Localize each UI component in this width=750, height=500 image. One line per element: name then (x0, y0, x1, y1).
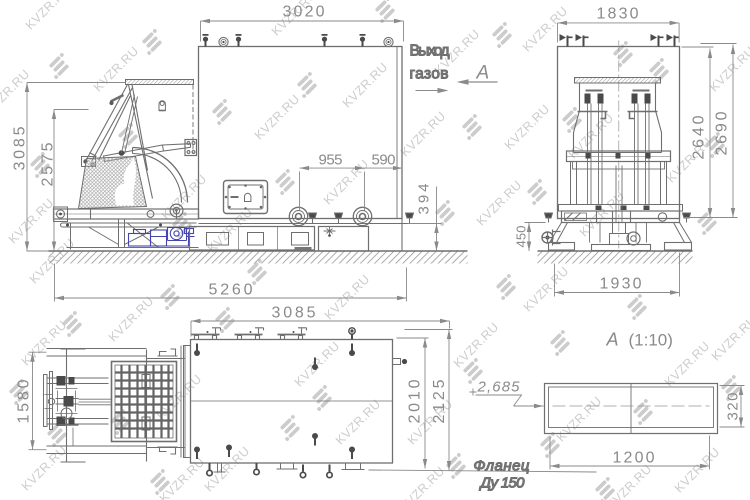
svg-text:Ду 150: Ду 150 (479, 475, 526, 492)
svg-text:450: 450 (514, 226, 529, 248)
svg-text:Выход: Выход (410, 43, 450, 60)
svg-text:590: 590 (372, 152, 396, 169)
svg-text:955: 955 (319, 152, 343, 169)
svg-text:2,685: 2,685 (477, 379, 521, 396)
svg-text:А: А (606, 330, 619, 350)
svg-text:Фланец: Фланец (474, 458, 530, 475)
svg-text:А: А (476, 63, 490, 84)
svg-text:газов: газов (410, 66, 449, 83)
svg-text:320: 320 (725, 393, 742, 421)
svg-text:(1:10): (1:10) (629, 331, 673, 350)
svg-text:394: 394 (416, 184, 433, 215)
